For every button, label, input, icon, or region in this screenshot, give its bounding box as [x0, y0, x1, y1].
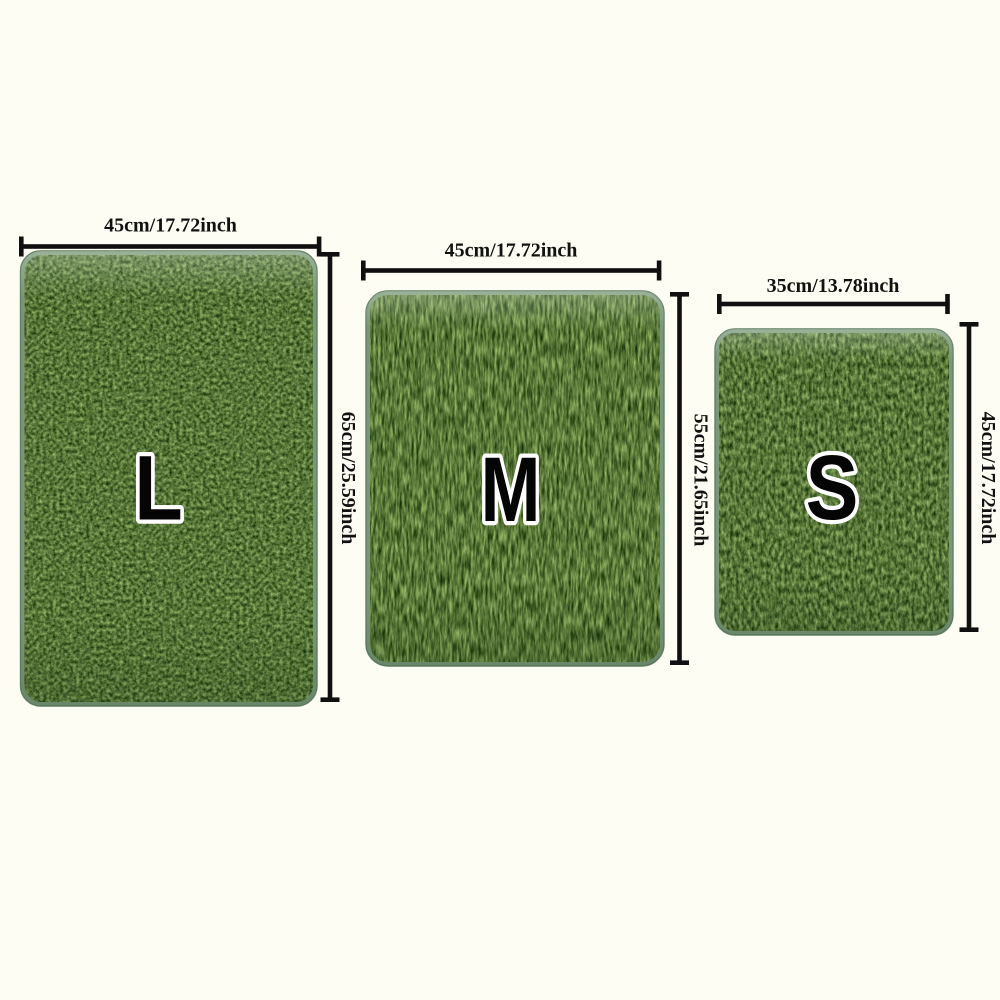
svg-text:S: S	[806, 436, 859, 539]
svg-text:55cm/21.65inch: 55cm/21.65inch	[690, 414, 712, 547]
svg-text:65cm/25.59inch: 65cm/25.59inch	[337, 412, 359, 545]
svg-text:35cm/13.78inch: 35cm/13.78inch	[767, 275, 900, 297]
svg-text:45cm/17.72inch: 45cm/17.72inch	[977, 412, 999, 545]
svg-text:L: L	[134, 437, 182, 540]
svg-text:M: M	[481, 438, 541, 541]
svg-text:45cm/17.72inch: 45cm/17.72inch	[104, 215, 237, 237]
svg-text:45cm/17.72inch: 45cm/17.72inch	[445, 240, 578, 262]
